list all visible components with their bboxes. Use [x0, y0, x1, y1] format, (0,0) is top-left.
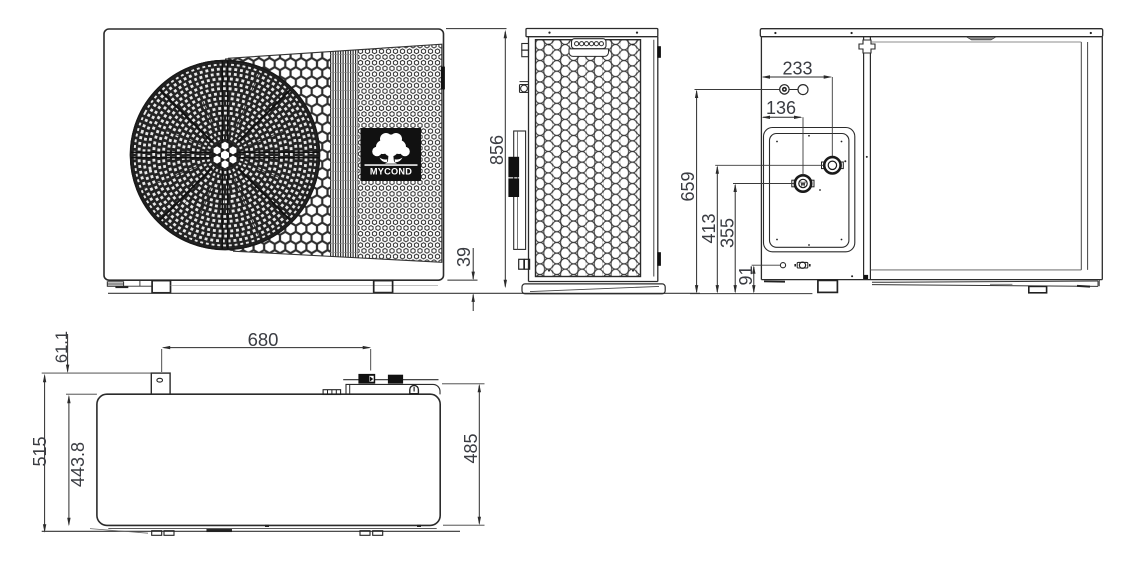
svg-text:413: 413 [699, 213, 719, 243]
svg-text:136: 136 [766, 98, 796, 118]
svg-text:61.1: 61.1 [53, 331, 71, 363]
svg-text:856: 856 [487, 135, 507, 165]
svg-text:355: 355 [718, 218, 738, 248]
svg-text:680: 680 [248, 329, 279, 350]
svg-text:515: 515 [30, 436, 50, 466]
svg-text:443.8: 443.8 [68, 442, 88, 487]
svg-text:233: 233 [782, 58, 812, 78]
svg-text:39: 39 [454, 247, 474, 267]
svg-text:659: 659 [678, 171, 698, 201]
svg-text:MYCOND: MYCOND [370, 167, 412, 177]
svg-text:91: 91 [736, 265, 756, 285]
svg-text:485: 485 [461, 433, 481, 463]
